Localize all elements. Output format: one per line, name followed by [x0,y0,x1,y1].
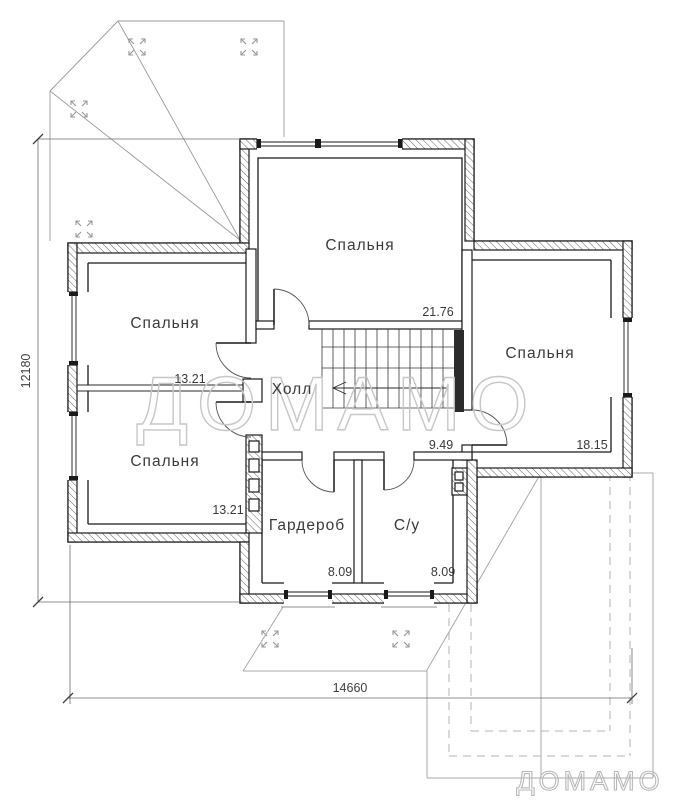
room-area-bedroom-right: 18.15 [576,438,607,452]
vent-shaft-left [246,435,262,533]
room-area-bedroom-top: 21.76 [422,305,453,319]
roof-slope-arrows-icon [262,631,278,647]
window-left-bottom [64,412,89,480]
dimension-width: 14660 [333,681,368,695]
floor-plan-canvas: 12180 14660 ДОМАМО ДОМАМО Спальня 21.76 … [0,0,674,800]
room-label-bedroom-left-bottom: Спальня [130,453,199,470]
room-area-wardrobe: 8.09 [328,565,352,579]
room-label-bedroom-top: Спальня [325,237,394,254]
floor-plan: 12180 14660 ДОМАМО ДОМАМО Спальня 21.76 … [0,0,674,800]
roof-slope-arrows-icon [76,221,92,237]
door-wardrobe [302,460,334,492]
roof-slope-arrows-icon [129,39,145,55]
room-label-bathroom: С/у [394,517,420,534]
window-bottom-left [281,580,335,607]
door-bathroom [384,460,414,490]
room-label-bedroom-right: Спальня [505,345,574,362]
room-label-wardrobe: Гардероб [269,517,345,534]
window-bottom-right [381,580,437,607]
room-area-bathroom: 8.09 [431,565,455,579]
watermark-corner: ДОМАМО [516,766,663,796]
room-area-bedroom-left-bottom: 13.21 [212,503,243,517]
door-bedroom-top [274,289,309,325]
window-left-top [64,292,89,365]
roof-slope-arrows-icon [393,631,409,647]
vent-shaft-right [452,468,467,495]
room-area-bedroom-left-top: 13.21 [174,372,205,386]
dimension-height: 12180 [19,354,33,389]
window-right [607,318,635,397]
room-label-hall: Холл [272,381,313,398]
room-label-bedroom-left-top: Спальня [130,315,199,332]
room-area-hall: 9.49 [429,438,453,452]
window-top [257,137,402,156]
roof-slope-arrows-icon [241,39,257,55]
